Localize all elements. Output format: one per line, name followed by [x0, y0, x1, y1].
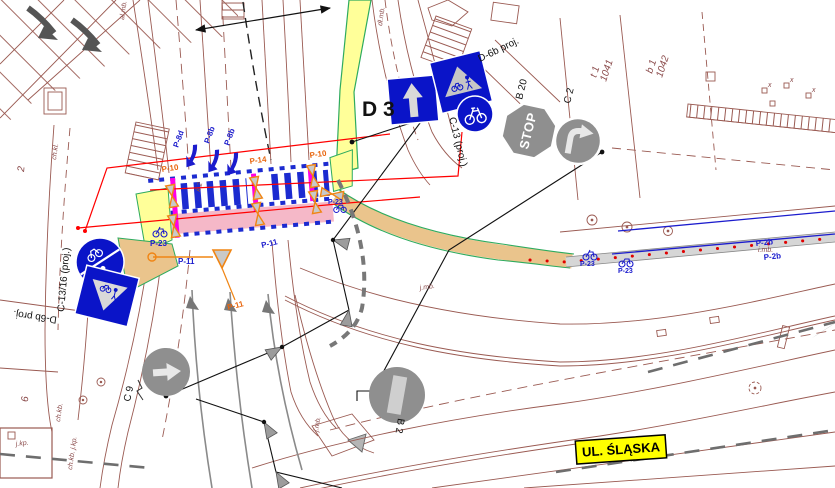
- label-p10-left: P-10: [161, 163, 180, 174]
- note-jmb-a: j.mb.: [418, 283, 435, 292]
- yellow-path-band: [336, 0, 371, 174]
- note-parcel-2: 2: [16, 165, 28, 173]
- sign-b2: [369, 367, 425, 423]
- note-jmb-b: j.mb.: [313, 416, 323, 433]
- survey-x-mark: x: [811, 87, 816, 94]
- yield-marking-triangle: [213, 250, 231, 268]
- parcel-labels: t 1 1041 b 1 1042: [588, 54, 671, 83]
- street-label: UL. ŚLĄSKA: [575, 435, 666, 464]
- survey-x-mark: x: [789, 77, 794, 84]
- note-imb: i.mb.: [758, 247, 773, 254]
- label-p8d: P-8d: [171, 129, 185, 148]
- label-p8b-b: P-8b: [222, 127, 236, 146]
- label-p14: P-14: [249, 155, 268, 166]
- label-p23-right-b: P-23: [618, 268, 633, 275]
- cycle-corridor: [118, 0, 835, 292]
- label-p23-left: P-23: [150, 239, 167, 248]
- label-b20: B 20: [514, 78, 530, 101]
- plan-canvas: P-10 P-14 P-10 P-8d P-8b P-8b P-23 P-23 …: [0, 0, 835, 488]
- sign-d3: [387, 75, 439, 125]
- note-jkp: j.kp.: [14, 440, 29, 448]
- label-p11-a: P-11: [178, 257, 195, 266]
- label-d3: D 3: [362, 98, 395, 121]
- survey-x-mark: x: [767, 82, 772, 89]
- fence: [687, 104, 835, 133]
- sign-c2: [551, 114, 604, 167]
- note-chkb-jkp: ch.kb. j.kp.: [67, 436, 79, 470]
- label-d6b-left: D-6b proj.: [13, 308, 58, 325]
- note-parcel-6: 6: [20, 396, 31, 402]
- hatched-structure: [222, 3, 244, 19]
- label-p23-right-a: P-23: [580, 261, 595, 268]
- parcel-1-num: 1041: [598, 58, 615, 83]
- parcel-2-num: 1042: [654, 54, 671, 79]
- label-c9: C 9: [122, 385, 136, 403]
- label-c13-16: C-13/16 (proj.): [56, 247, 73, 312]
- label-p23-mid: P-23: [328, 199, 343, 206]
- signage-plan: P-10 P-14 P-10 P-8d P-8b P-8b P-23 P-23 …: [0, 0, 835, 488]
- note-dlmb: dł.mb.: [377, 6, 387, 26]
- power-symbol: [137, 380, 143, 400]
- lane-arrows-blue: [185, 144, 240, 176]
- label-d6b-right: D-6b proj.: [476, 36, 520, 65]
- note-chkl: ch.kl.: [51, 143, 60, 160]
- label-c2: C 2: [562, 87, 577, 105]
- note-chkb: ch.kb.: [55, 403, 65, 423]
- label-p10-right: P-10: [309, 149, 328, 160]
- blue-edge-line-1: [618, 211, 835, 231]
- sign-keep-right: [140, 346, 191, 397]
- label-p8b-a: P-8b: [202, 125, 216, 144]
- label-p11-b: P-11: [260, 237, 279, 250]
- sign-stop: STOP: [498, 100, 560, 162]
- tan-band: [336, 196, 572, 261]
